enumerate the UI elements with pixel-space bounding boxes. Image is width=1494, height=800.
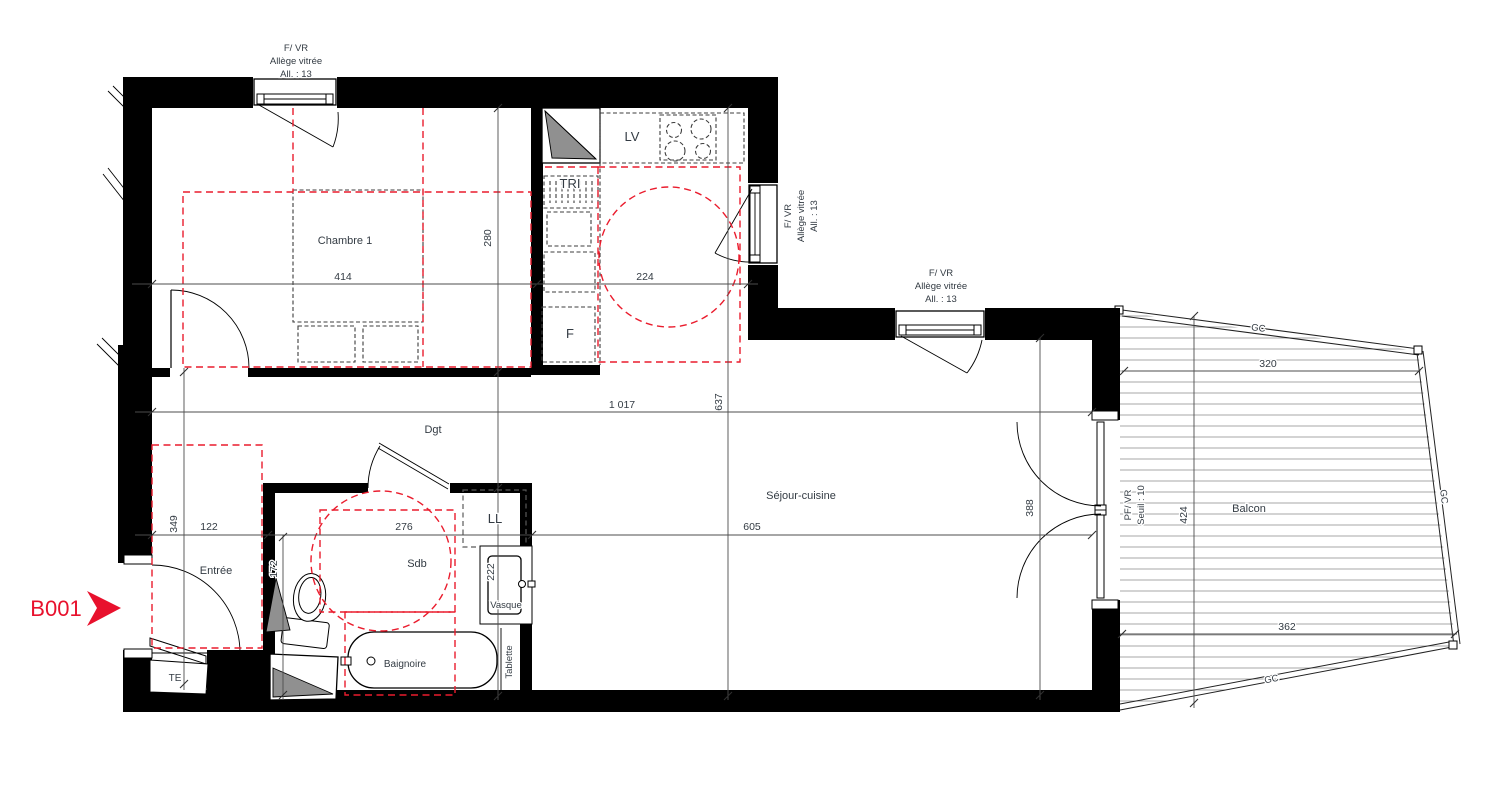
room-label-balcon: Balcon: [1232, 503, 1266, 515]
room-label-chambre: Chambre 1: [318, 235, 372, 247]
railing-post: [1414, 346, 1422, 354]
balcony-railing: [1115, 306, 1460, 710]
dim-entree-width: 122: [200, 521, 218, 533]
svg-text:F/ VR: F/ VR: [929, 268, 953, 279]
window-label-chambre: F/ VR Allège vitrée All. : 13: [270, 43, 322, 80]
vasque: [480, 546, 535, 624]
svg-text:PF/ VR: PF/ VR: [1123, 490, 1134, 521]
dim-cuisine-width: 224: [636, 271, 654, 283]
toilet: [281, 571, 336, 649]
svg-text:F/ VR: F/ VR: [284, 43, 308, 54]
dim-balcon-side: 424: [1178, 506, 1190, 524]
window-label-sejour: F/ VR Allège vitrée All. : 13: [915, 268, 967, 305]
label-washer: LL: [488, 511, 502, 526]
dim-balcon-bottom: 362: [1278, 621, 1296, 633]
unit-arrow-icon: [87, 591, 121, 626]
balcony-deck-lines: [1118, 316, 1462, 701]
electrical-panel: [150, 638, 208, 694]
accessibility-zones: [152, 108, 740, 695]
floor-plan: Chambre 1 Séjour-cuisine Entrée Dgt Sdb …: [0, 0, 1494, 800]
label-tablette: Tablette: [504, 645, 515, 678]
room-label-sejour: Séjour-cuisine: [766, 490, 836, 502]
bed: [293, 190, 423, 362]
dim-chambre-width: 414: [334, 271, 352, 283]
faucet-icon: [367, 657, 375, 665]
dim-baie-height: 388: [1024, 499, 1036, 517]
railing-label-bottom: GC: [1264, 673, 1280, 687]
railing-post: [1449, 641, 1457, 649]
svg-text:All. : 13: All. : 13: [809, 200, 820, 232]
label-vasque: Vasque: [490, 600, 522, 611]
unit-label: B001: [30, 596, 81, 621]
window-chambre: [254, 79, 338, 147]
railing-label-top: GC: [1251, 322, 1267, 335]
room-label-dgt: Dgt: [424, 424, 441, 436]
shaft-bathroom: [270, 654, 338, 700]
dim-balcon-top: 320: [1259, 358, 1277, 370]
window-sejour: [896, 311, 984, 373]
svg-text:Allège vitrée: Allège vitrée: [915, 281, 967, 292]
walls: [118, 77, 1120, 712]
french-door-label: PF/ VR Seuil : 10: [1123, 485, 1147, 525]
dim-chambre-height: 280: [482, 229, 494, 247]
room-label-sdb: Sdb: [407, 558, 427, 570]
window-cuisine: [715, 185, 777, 263]
label-tri: TRI: [560, 176, 581, 191]
svg-text:Seuil : 10: Seuil : 10: [1136, 485, 1147, 525]
svg-text:All. : 13: All. : 13: [280, 69, 312, 80]
label-fridge: F: [566, 326, 574, 341]
railing-label-right: GC: [1437, 489, 1450, 505]
label-te: TE: [169, 673, 182, 684]
svg-text:Allège vitrée: Allège vitrée: [270, 56, 322, 67]
svg-text:All. : 13: All. : 13: [925, 294, 957, 305]
dim-sdb-width: 276: [395, 521, 413, 533]
labels: Chambre 1 Séjour-cuisine Entrée Dgt Sdb …: [168, 43, 1450, 686]
label-baignoire: Baignoire: [384, 659, 427, 670]
label-lv: LV: [625, 129, 640, 144]
faucet-icon: [519, 581, 526, 588]
svg-text:F/ VR: F/ VR: [783, 204, 794, 228]
dim-interior-height: 637: [713, 393, 725, 411]
dim-entree-height: 349: [168, 515, 180, 533]
unit-marker: B001: [30, 591, 121, 626]
dim-sejour-width: 605: [743, 521, 761, 533]
window-label-cuisine: F/ VR Allège vitrée All. : 13: [783, 190, 820, 242]
svg-text:Allège vitrée: Allège vitrée: [796, 190, 807, 242]
dim-wc-height: 172: [268, 560, 280, 578]
dim-interior-width: 1 017: [609, 399, 635, 411]
room-label-entree: Entrée: [200, 565, 232, 577]
dim-sdb-height: 222: [485, 563, 497, 581]
shaft-kitchen: [542, 108, 600, 163]
sink-tri: [544, 176, 598, 292]
balcony: [1115, 306, 1462, 710]
door-sdb: [368, 443, 449, 489]
